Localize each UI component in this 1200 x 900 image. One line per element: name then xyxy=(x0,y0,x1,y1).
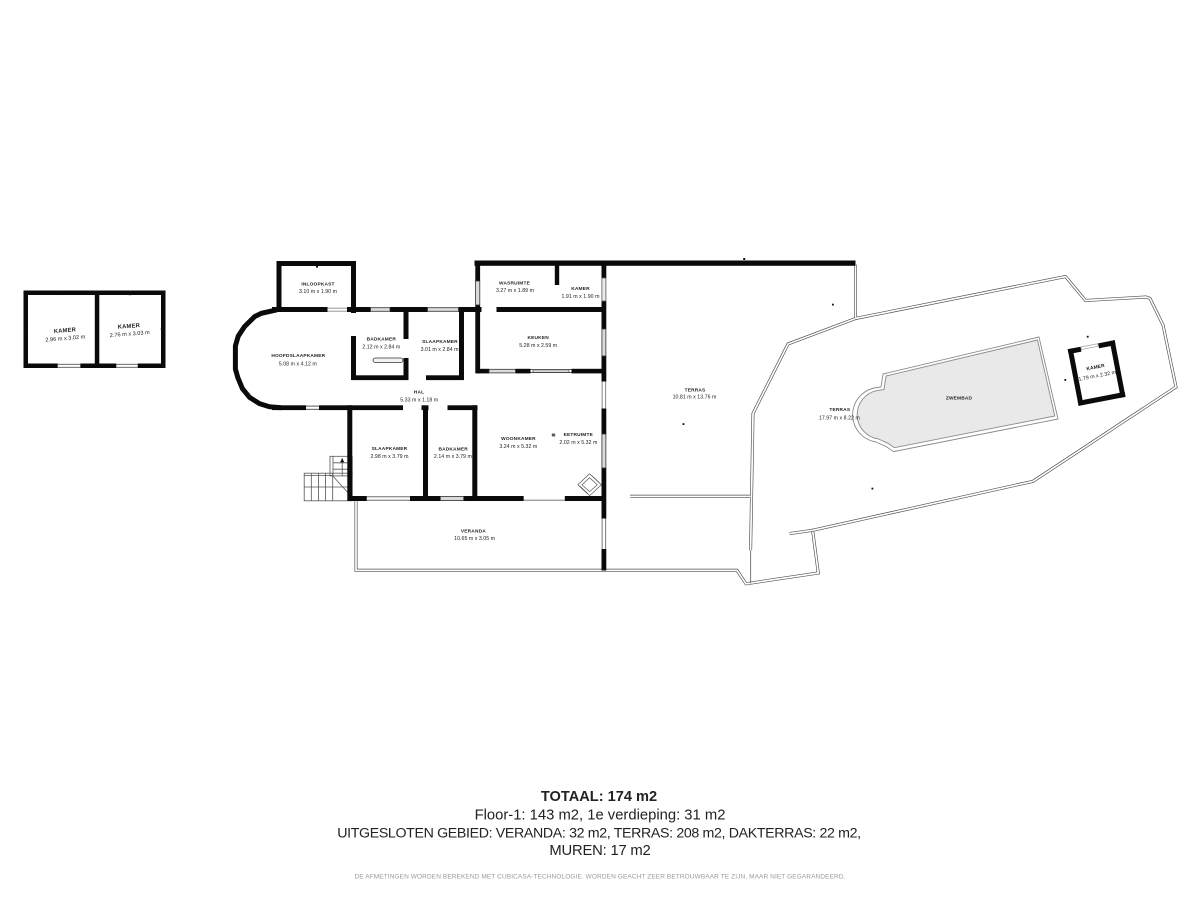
svg-text:5.33 m x 1.18 m: 5.33 m x 1.18 m xyxy=(400,398,439,404)
svg-text:17.97 m x 8.22 m: 17.97 m x 8.22 m xyxy=(819,416,860,422)
svg-text:UITGESLOTEN GEBIED: VERANDA: 3: UITGESLOTEN GEBIED: VERANDA: 32 m2, TERR… xyxy=(337,826,861,842)
svg-text:INLOOPKAST: INLOOPKAST xyxy=(301,281,334,287)
svg-text:WOONKAMER: WOONKAMER xyxy=(501,436,536,442)
svg-text:KAMER: KAMER xyxy=(1086,363,1106,372)
svg-text:3.10 m x 1.90 m: 3.10 m x 1.90 m xyxy=(299,289,338,295)
svg-text:KAMER: KAMER xyxy=(571,286,590,292)
svg-text:5.28 m x 2.59 m: 5.28 m x 2.59 m xyxy=(519,343,558,349)
svg-text:EETRUIMTE: EETRUIMTE xyxy=(564,432,594,438)
svg-text:3.24 m x 5.32 m: 3.24 m x 5.32 m xyxy=(499,444,538,450)
svg-text:ZWEMBAD: ZWEMBAD xyxy=(946,395,973,401)
svg-text:KAMER: KAMER xyxy=(54,327,77,335)
svg-text:10.81 m x 13.76 m: 10.81 m x 13.76 m xyxy=(673,395,717,401)
svg-text:TERRAS: TERRAS xyxy=(829,407,850,413)
svg-text:BADKAMER: BADKAMER xyxy=(367,336,397,342)
svg-text:1.79 m x 2.32 m: 1.79 m x 2.32 m xyxy=(1078,370,1117,383)
svg-text:2.96 m x 3.02 m: 2.96 m x 3.02 m xyxy=(45,334,86,343)
svg-text:KEUKEN: KEUKEN xyxy=(528,335,550,341)
svg-text:SLAAPKAMER: SLAAPKAMER xyxy=(422,339,458,345)
svg-text:3.01 m x 2.84 m: 3.01 m x 2.84 m xyxy=(421,347,460,353)
svg-text:Floor-1: 143 m2, 1e verdieping: Floor-1: 143 m2, 1e verdieping: 31 m2 xyxy=(475,808,726,824)
svg-text:2.98 m x 3.79 m: 2.98 m x 3.79 m xyxy=(371,454,410,460)
svg-text:VERANDA: VERANDA xyxy=(461,528,486,534)
svg-text:KAMER: KAMER xyxy=(118,323,141,331)
svg-text:HOOFDSLAAPKAMER: HOOFDSLAAPKAMER xyxy=(271,353,325,359)
svg-text:HAL: HAL xyxy=(414,390,424,396)
svg-text:TOTAAL: 174 m2: TOTAAL: 174 m2 xyxy=(541,789,657,805)
svg-text:DE AFMETINGEN WORDEN BEREKEND: DE AFMETINGEN WORDEN BEREKEND MET CUBICA… xyxy=(354,874,845,881)
svg-text:2.02 m x 5.32 m: 2.02 m x 5.32 m xyxy=(559,440,598,446)
svg-text:SLAAPKAMER: SLAAPKAMER xyxy=(372,446,408,452)
svg-text:WASRUIMTE: WASRUIMTE xyxy=(499,280,531,286)
svg-text:2.76 m x 3.03 m: 2.76 m x 3.03 m xyxy=(110,330,151,339)
svg-text:10.65 m x 3.05 m: 10.65 m x 3.05 m xyxy=(454,536,495,542)
svg-text:1.91 m x 1.90 m: 1.91 m x 1.90 m xyxy=(562,294,601,300)
svg-text:3.27 m x 1.89 m: 3.27 m x 1.89 m xyxy=(496,288,535,294)
svg-text:MUREN: 17 m2: MUREN: 17 m2 xyxy=(549,843,650,859)
svg-text:2.12 m x 2.84 m: 2.12 m x 2.84 m xyxy=(362,344,401,350)
svg-text:BADKAMER: BADKAMER xyxy=(438,446,468,452)
svg-text:5.08 m x 4.12 m: 5.08 m x 4.12 m xyxy=(279,361,318,367)
svg-text:TERRAS: TERRAS xyxy=(685,388,706,394)
svg-text:2.14 m x 3.79 m: 2.14 m x 3.79 m xyxy=(434,454,473,460)
